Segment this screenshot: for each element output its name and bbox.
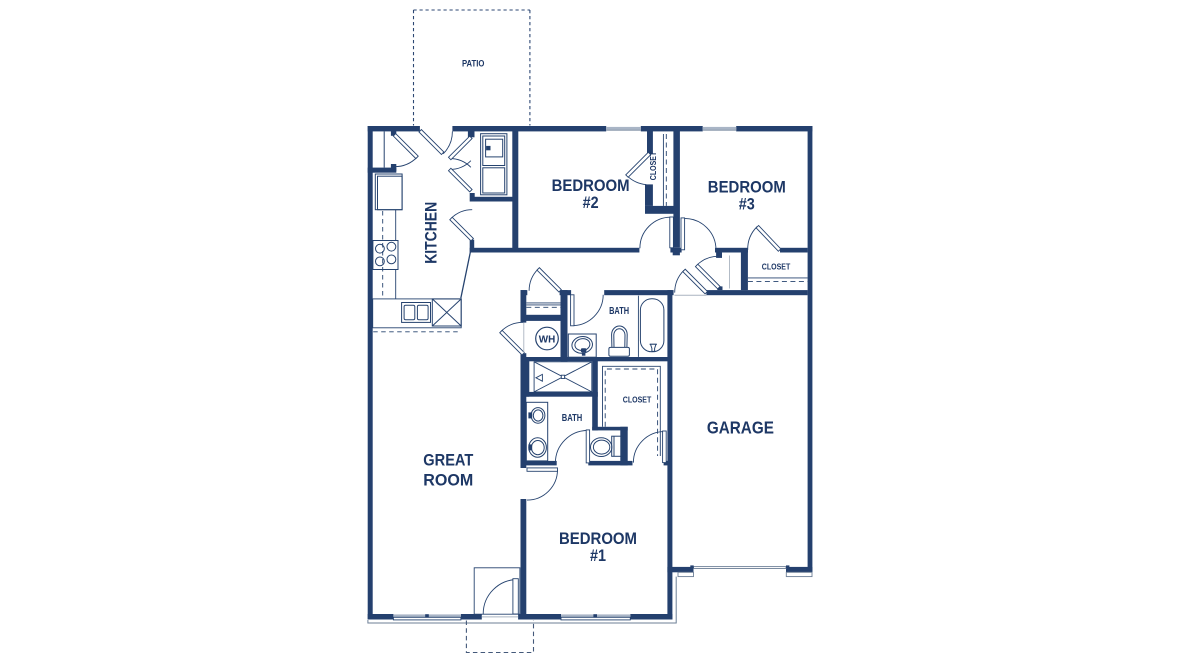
svg-text:PATIO: PATIO xyxy=(462,59,485,69)
svg-text:BEDROOM: BEDROOM xyxy=(708,179,786,197)
svg-text:CLOSET: CLOSET xyxy=(623,394,652,404)
svg-text:GARAGE: GARAGE xyxy=(707,417,774,437)
svg-text:#1: #1 xyxy=(590,547,606,565)
svg-text:WH: WH xyxy=(539,333,556,345)
svg-text:BATH: BATH xyxy=(609,306,629,317)
svg-text:BEDROOM: BEDROOM xyxy=(552,177,630,195)
svg-text:CLOSET: CLOSET xyxy=(762,261,791,271)
svg-text:GREAT: GREAT xyxy=(423,452,473,470)
svg-text:ROOM: ROOM xyxy=(423,472,473,490)
svg-text:#2: #2 xyxy=(583,194,599,212)
svg-text:#3: #3 xyxy=(739,196,755,214)
svg-text:BEDROOM: BEDROOM xyxy=(559,530,637,548)
svg-text:KITCHEN: KITCHEN xyxy=(422,202,441,264)
svg-text:BATH: BATH xyxy=(562,413,583,424)
